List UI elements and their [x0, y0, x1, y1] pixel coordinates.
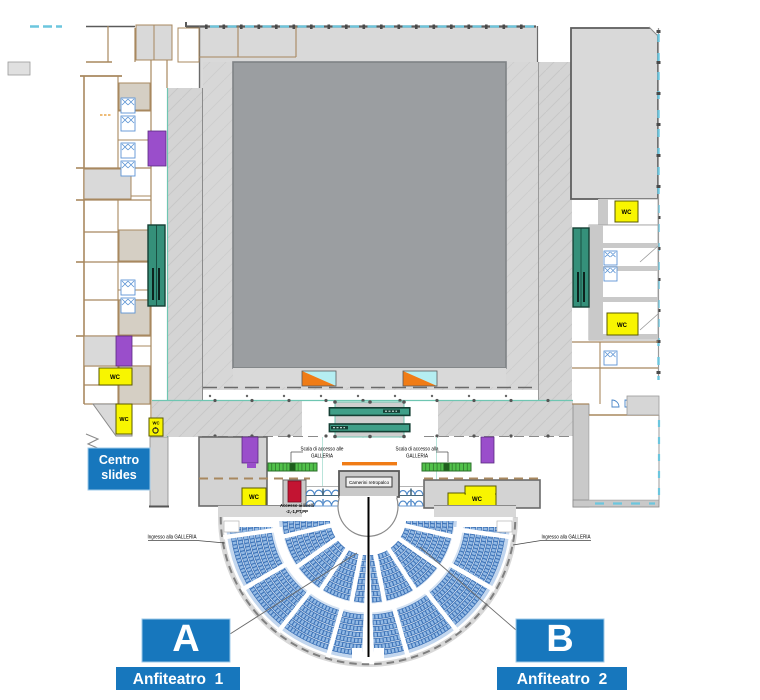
svg-text:WC: WC [249, 495, 260, 501]
svg-text:A: A [172, 618, 199, 660]
svg-text:Anfiteatro 1: Anfiteatro 1 [133, 671, 224, 688]
svg-text:GALLERIA: GALLERIA [311, 454, 333, 460]
svg-text:Camerini retropalco: Camerini retropalco [349, 480, 390, 485]
svg-text:WC: WC [153, 421, 160, 426]
svg-text:-2,-1,PT,PP: -2,-1,PT,PP [286, 509, 308, 514]
svg-text:Anfiteatro 2: Anfiteatro 2 [517, 671, 607, 688]
svg-text:B: B [546, 618, 573, 660]
svg-text:GALLERIA: GALLERIA [406, 454, 428, 460]
svg-text:WC: WC [617, 323, 628, 329]
svg-text:Scala di accesso alla: Scala di accesso alla [396, 447, 439, 453]
svg-text:Ingresso alla GALLERIA: Ingresso alla GALLERIA [542, 535, 591, 541]
svg-text:Ingresso alla GALLERIA: Ingresso alla GALLERIA [148, 535, 197, 541]
svg-text:Scala di accesso alle: Scala di accesso alle [301, 447, 344, 453]
svg-text:slides: slides [101, 468, 136, 482]
svg-text:WC: WC [119, 417, 128, 423]
svg-text:Accesso ai livelli: Accesso ai livelli [280, 503, 314, 508]
svg-text:WC: WC [110, 375, 121, 381]
svg-text:WC: WC [622, 210, 633, 216]
svg-text:Centro: Centro [99, 453, 140, 467]
svg-text:WC: WC [472, 497, 483, 503]
